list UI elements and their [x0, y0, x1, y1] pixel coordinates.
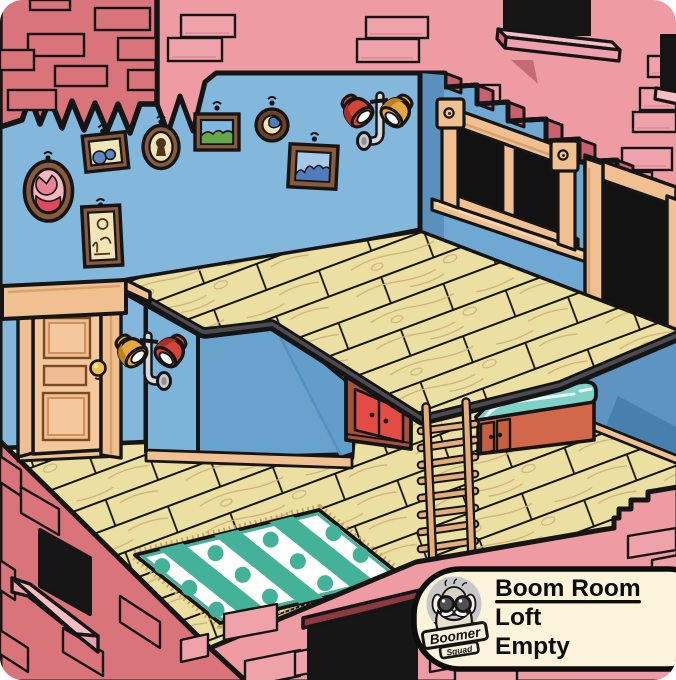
svg-text:Loft: Loft: [495, 604, 541, 631]
svg-text:Empty: Empty: [495, 633, 570, 660]
svg-text:Boom Room: Boom Room: [495, 575, 641, 602]
